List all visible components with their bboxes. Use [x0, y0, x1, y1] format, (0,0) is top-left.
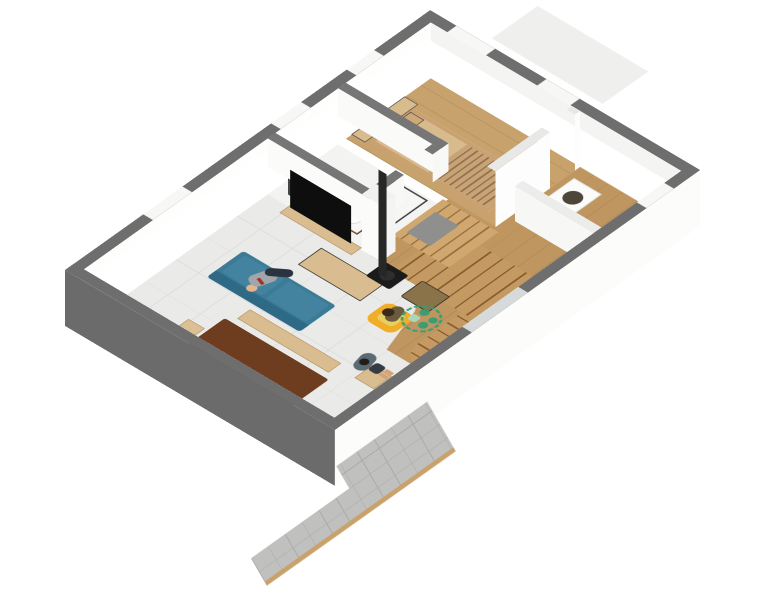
house-scene	[65, 66, 700, 486]
bedroom-partition-face	[575, 111, 580, 171]
stove-chimney-pipe	[378, 169, 386, 279]
floor-plan-canvas	[0, 0, 762, 600]
terrace-edge-strip	[264, 447, 455, 586]
